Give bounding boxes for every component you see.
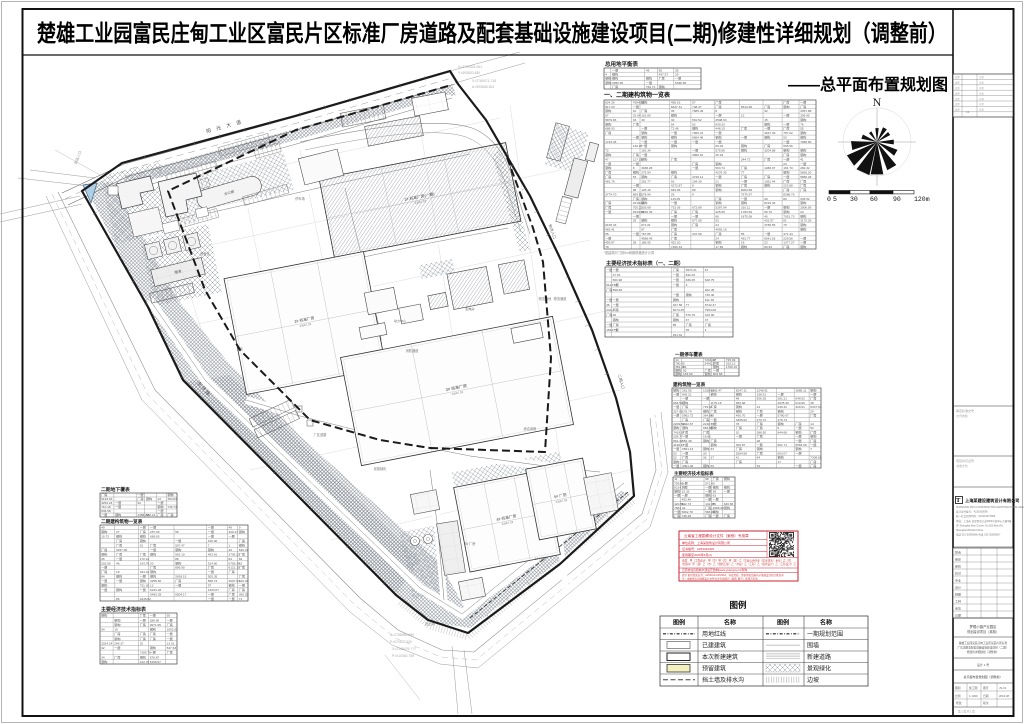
svg-text:A=593648.304: A=593648.304 xyxy=(472,85,494,89)
svg-text:一层: 一层 xyxy=(605,209,611,214)
svg-text:一层: 一层 xyxy=(633,135,639,140)
svg-text:507.47: 507.47 xyxy=(175,543,185,547)
svg-text:会签: 会签 xyxy=(955,81,960,85)
svg-text:316.30: 316.30 xyxy=(208,539,218,543)
svg-text:一层: 一层 xyxy=(692,165,698,170)
svg-text:一层: 一层 xyxy=(757,413,763,418)
svg-text:3324.24: 3324.24 xyxy=(101,641,112,645)
svg-text:厂房: 厂房 xyxy=(140,551,146,556)
svg-text:厂房: 厂房 xyxy=(705,513,711,518)
svg-text:806.90: 806.90 xyxy=(175,566,185,570)
svg-text:1875.58: 1875.58 xyxy=(741,214,752,218)
svg-text:围墙: 围墙 xyxy=(807,642,819,650)
svg-text:审定标准文号: 审定标准文号 xyxy=(956,408,974,413)
svg-text:图例: 图例 xyxy=(673,619,685,627)
svg-text:9: 9 xyxy=(692,192,694,196)
svg-text:3204.88: 3204.88 xyxy=(764,149,775,153)
svg-text:P=010062.769: P=010062.769 xyxy=(392,654,414,658)
svg-text:458.16: 458.16 xyxy=(671,100,681,104)
svg-text:钢构: 钢构 xyxy=(741,148,747,153)
svg-text:一层: 一层 xyxy=(114,645,120,650)
svg-text:32: 32 xyxy=(764,109,768,113)
svg-text:93: 93 xyxy=(715,219,719,223)
svg-text:17: 17 xyxy=(778,460,782,464)
svg-text:5397.94: 5397.94 xyxy=(715,206,726,210)
svg-text:49: 49 xyxy=(229,526,233,530)
svg-text:一层: 一层 xyxy=(606,297,612,302)
svg-text:6074.35: 6074.35 xyxy=(673,308,684,312)
svg-text:27.91: 27.91 xyxy=(613,273,621,277)
svg-text:8: 8 xyxy=(692,184,694,188)
svg-text:一层: 一层 xyxy=(682,450,688,455)
svg-text:一层: 一层 xyxy=(140,525,146,530)
svg-text:483.41: 483.41 xyxy=(605,228,615,232)
svg-text:厂房: 厂房 xyxy=(613,322,619,327)
svg-text:总平面布置规划图（调整前）: 总平面布置规划图（调整前） xyxy=(963,674,1002,679)
svg-text:一层: 一层 xyxy=(673,282,679,287)
svg-text:329.33: 329.33 xyxy=(239,579,249,583)
svg-text:453.81: 453.81 xyxy=(208,552,218,556)
svg-text:厂房: 厂房 xyxy=(239,587,245,592)
svg-text:图号: 图号 xyxy=(983,686,989,690)
svg-text:厂房: 厂房 xyxy=(150,565,156,570)
svg-text:厂房: 厂房 xyxy=(671,235,677,240)
svg-text:41: 41 xyxy=(800,157,804,161)
svg-text:1: 1 xyxy=(229,543,231,547)
svg-text:一层: 一层 xyxy=(715,174,721,179)
svg-text:81: 81 xyxy=(783,219,787,223)
svg-text:1403.07: 1403.07 xyxy=(208,588,219,592)
svg-text:62: 62 xyxy=(692,122,696,126)
svg-text:厂房: 厂房 xyxy=(229,587,235,592)
svg-text:一层: 一层 xyxy=(613,267,619,272)
svg-text:会签: 会签 xyxy=(955,605,961,610)
svg-text:844.68: 844.68 xyxy=(778,430,788,434)
svg-text:6445.82: 6445.82 xyxy=(140,597,151,601)
svg-text:厂房: 厂房 xyxy=(692,222,698,227)
svg-text:N: N xyxy=(873,95,882,109)
svg-text:19: 19 xyxy=(114,628,118,632)
svg-text:厂房: 厂房 xyxy=(674,513,680,518)
svg-text:厂房: 厂房 xyxy=(150,636,156,641)
svg-text:厂房: 厂房 xyxy=(783,178,789,183)
svg-text:80.33: 80.33 xyxy=(764,245,772,249)
svg-text:0: 0 xyxy=(827,196,831,203)
svg-text:192.34: 192.34 xyxy=(641,149,651,153)
svg-text:厂房: 厂房 xyxy=(764,156,770,161)
svg-text:钢构: 钢构 xyxy=(116,587,122,592)
svg-text:厂房: 厂房 xyxy=(692,209,698,214)
svg-text:厂房: 厂房 xyxy=(167,650,173,655)
svg-text:SHANGHAI MOU CONSTRUCTION ARCH: SHANGHAI MOU CONSTRUCTION ARCHITECTURAL … xyxy=(956,506,1024,509)
svg-text:一层: 一层 xyxy=(167,636,173,641)
svg-text:边坡: 边坡 xyxy=(807,676,819,684)
svg-text:186.95: 186.95 xyxy=(641,241,651,245)
svg-text:425.65: 425.65 xyxy=(715,210,725,214)
svg-text:9: 9 xyxy=(239,526,241,530)
svg-text:钢构: 钢构 xyxy=(715,161,721,166)
svg-text:钢构: 钢构 xyxy=(673,317,679,322)
svg-text:一层: 一层 xyxy=(795,450,801,455)
svg-text:厂房: 厂房 xyxy=(741,183,747,188)
svg-text:用地红线: 用地红线 xyxy=(702,630,726,638)
svg-text:厂房: 厂房 xyxy=(114,654,120,659)
svg-text:钢构: 钢构 xyxy=(741,200,747,205)
svg-text:5886.28: 5886.28 xyxy=(800,175,811,179)
svg-text:5493.28: 5493.28 xyxy=(150,593,161,597)
svg-text:厂房: 厂房 xyxy=(114,631,120,636)
svg-text:6# 厂房: 6# 厂房 xyxy=(535,556,546,561)
svg-text:钢构: 钢构 xyxy=(671,170,677,175)
svg-text:设计证书编号：A231005696: 设计证书编号：A231005696 xyxy=(956,510,988,514)
svg-text:钢构: 钢构 xyxy=(659,84,665,89)
svg-text:21: 21 xyxy=(715,179,719,183)
svg-text:188.90: 188.90 xyxy=(150,618,160,622)
svg-text:厂房: 厂房 xyxy=(140,622,146,627)
svg-text:578.87: 578.87 xyxy=(150,655,160,659)
svg-text:一层: 一层 xyxy=(673,277,679,282)
svg-text:689.83: 689.83 xyxy=(150,534,160,538)
svg-text:1723.45: 1723.45 xyxy=(605,140,616,144)
svg-text:3789.55: 3789.55 xyxy=(764,223,775,227)
svg-text:钢构: 钢构 xyxy=(146,496,152,501)
svg-text:一层: 一层 xyxy=(606,267,612,272)
svg-text:一层: 一层 xyxy=(150,547,156,552)
svg-text:钢构: 钢构 xyxy=(115,512,121,517)
svg-text:3574.21: 3574.21 xyxy=(686,268,697,272)
svg-text:628.75: 628.75 xyxy=(705,278,715,282)
svg-text:日期: 日期 xyxy=(979,81,984,85)
svg-text:厂房: 厂房 xyxy=(673,267,679,272)
svg-text:厂房: 厂房 xyxy=(741,126,747,131)
svg-text:8288.76: 8288.76 xyxy=(783,192,794,196)
svg-text:名称: 名称 xyxy=(724,619,736,627)
svg-text:164.30: 164.30 xyxy=(692,179,702,183)
svg-text:54: 54 xyxy=(671,122,675,126)
svg-text:一层: 一层 xyxy=(715,139,721,144)
svg-text:云南省工程勘察设计文件（案例）专用章: 云南省工程勘察设计文件（案例）专用章 xyxy=(684,533,749,538)
svg-text:钢构: 钢构 xyxy=(671,135,677,140)
svg-text:厂房: 厂房 xyxy=(208,565,214,570)
svg-text:275.54: 275.54 xyxy=(641,171,651,175)
svg-text:会签: 会签 xyxy=(955,75,960,79)
svg-text:29: 29 xyxy=(671,192,675,196)
svg-text:229.56: 229.56 xyxy=(783,236,793,240)
svg-text:一层: 一层 xyxy=(140,617,146,622)
svg-text:钢构: 钢构 xyxy=(641,218,647,223)
svg-text:565.96: 565.96 xyxy=(783,144,793,148)
svg-text:厂房: 厂房 xyxy=(606,312,612,317)
svg-text:514.60: 514.60 xyxy=(208,561,218,565)
svg-text:钢构: 钢构 xyxy=(764,121,770,126)
svg-text:319.90: 319.90 xyxy=(705,313,715,317)
svg-text:8742.37: 8742.37 xyxy=(705,303,716,307)
svg-text:提示:取得资质证书：A253010-A253010，有效资质: 提示:取得资质证书：A253010-A253010，有效资质，资格等级范围内从事… xyxy=(682,573,784,577)
svg-text:172.12: 172.12 xyxy=(140,557,150,561)
svg-text:762.71: 762.71 xyxy=(646,85,656,89)
svg-text:1885.11: 1885.11 xyxy=(795,388,806,392)
svg-text:327.56: 327.56 xyxy=(673,303,683,307)
svg-text:5338.65: 5338.65 xyxy=(675,81,686,85)
svg-text:Shanghai 200120 China: Shanghai 200120 China xyxy=(956,529,983,532)
svg-text:10: 10 xyxy=(633,109,637,113)
svg-text:3170.26: 3170.26 xyxy=(800,219,811,223)
svg-text:施工图: 施工图 xyxy=(969,686,978,690)
svg-text:梦想小镇产业园区: 梦想小镇产业园区 xyxy=(969,624,997,629)
svg-text:一层: 一层 xyxy=(703,396,709,401)
svg-text:一层: 一层 xyxy=(692,148,698,153)
svg-text:824.26: 824.26 xyxy=(605,100,615,104)
svg-text:楚雄工业园富民庄甸工业区富民片区标准厂房道路及配套基础设施建: 楚雄工业园富民庄甸工业区富民片区标准厂房道路及配套基础设施建设项目(二期)修建性… xyxy=(37,20,947,46)
svg-text:钢构: 钢构 xyxy=(741,244,747,249)
svg-text:钢构: 钢构 xyxy=(239,542,245,547)
svg-text:730.36: 730.36 xyxy=(705,293,715,297)
svg-text:575.66: 575.66 xyxy=(715,149,725,153)
svg-text:钢构: 钢构 xyxy=(175,560,181,565)
svg-text:一层: 一层 xyxy=(673,272,679,277)
svg-text:一层: 一层 xyxy=(741,135,747,140)
svg-text:厂房: 厂房 xyxy=(605,205,611,210)
svg-text:厂房: 厂房 xyxy=(633,152,639,157)
svg-text:一层: 一层 xyxy=(208,529,214,534)
svg-text:688.93: 688.93 xyxy=(605,127,615,131)
svg-text:563.98: 563.98 xyxy=(613,278,623,282)
svg-text:69: 69 xyxy=(711,464,715,468)
svg-text:27: 27 xyxy=(116,530,120,534)
svg-text:修改: 修改 xyxy=(956,701,962,705)
svg-text:钢构: 钢构 xyxy=(114,622,120,627)
svg-text:钢构: 钢构 xyxy=(724,505,730,510)
svg-text:384.83: 384.83 xyxy=(167,497,177,501)
svg-text:一层: 一层 xyxy=(150,613,156,618)
svg-text:4276.35: 4276.35 xyxy=(715,171,726,175)
svg-text:1092.02: 1092.02 xyxy=(167,628,178,632)
svg-text:57: 57 xyxy=(692,100,696,104)
svg-text:钢构: 钢构 xyxy=(229,583,235,588)
svg-text:厂房: 厂房 xyxy=(116,542,122,547)
svg-text:钢构: 钢构 xyxy=(140,533,146,538)
svg-text:86: 86 xyxy=(175,557,179,561)
svg-text:526.47: 526.47 xyxy=(239,548,249,552)
svg-text:55: 55 xyxy=(167,614,171,618)
svg-text:消防通道: 消防通道 xyxy=(406,348,420,353)
svg-text:日期: 日期 xyxy=(983,694,989,698)
svg-text:钢构: 钢构 xyxy=(633,170,639,175)
svg-text:94: 94 xyxy=(137,501,141,505)
svg-text:598.73: 598.73 xyxy=(208,579,218,583)
svg-text:钢构: 钢构 xyxy=(605,80,611,85)
svg-text:一层: 一层 xyxy=(208,525,214,530)
svg-text:115.05: 115.05 xyxy=(671,197,681,201)
svg-text:日期: 日期 xyxy=(955,612,961,617)
svg-text:钢构: 钢构 xyxy=(715,200,721,205)
svg-text:厂房: 厂房 xyxy=(633,121,639,126)
svg-text:4272.87: 4272.87 xyxy=(671,184,682,188)
svg-text:JS-01: JS-01 xyxy=(999,686,1007,690)
svg-text:钢构: 钢构 xyxy=(741,143,747,148)
svg-text:61: 61 xyxy=(140,543,144,547)
svg-text:257.09: 257.09 xyxy=(150,530,160,534)
svg-text:69.04: 69.04 xyxy=(715,144,723,148)
svg-text:6541.93: 6541.93 xyxy=(764,236,775,240)
svg-text:432.57: 432.57 xyxy=(764,219,774,223)
svg-text:X=21684?5.??7: X=21684?5.??7 xyxy=(392,647,416,651)
svg-text:59.70: 59.70 xyxy=(764,210,772,214)
svg-text:厂房: 厂房 xyxy=(810,413,816,418)
svg-text:宿舍区: 宿舍区 xyxy=(200,251,210,256)
svg-text:471.44: 471.44 xyxy=(783,232,793,236)
svg-text:钢构: 钢构 xyxy=(715,240,721,245)
svg-text:钢构: 钢构 xyxy=(800,117,806,122)
svg-text:厂房: 厂房 xyxy=(613,307,619,312)
svg-text:67: 67 xyxy=(705,268,709,272)
svg-text:厂房: 厂房 xyxy=(783,152,789,157)
svg-text:37: 37 xyxy=(686,318,690,322)
svg-text:一层: 一层 xyxy=(633,104,639,109)
svg-text:222.88: 222.88 xyxy=(783,184,793,188)
svg-text:817.63: 817.63 xyxy=(605,105,615,109)
svg-text:一层: 一层 xyxy=(764,126,770,131)
svg-text:厂房: 厂房 xyxy=(239,538,245,543)
svg-text:一层: 一层 xyxy=(673,463,679,468)
svg-text:X=2769424.061: X=2769424.061 xyxy=(458,65,482,69)
svg-text:30: 30 xyxy=(641,118,645,122)
svg-text:一层: 一层 xyxy=(606,322,612,327)
svg-text:5: 5 xyxy=(833,196,837,203)
svg-text:景园林）甲（建）乙（市）乙（规划乙级）乙（市政）乙（工程）乙: 景园林）甲（建）乙（市）乙（规划乙级）乙（市政）乙（工程）乙（勘察设计）乙（工程… xyxy=(682,562,797,566)
svg-text:748.37: 748.37 xyxy=(692,105,702,109)
svg-text:一层: 一层 xyxy=(116,578,122,583)
svg-text:一层: 一层 xyxy=(229,533,235,538)
svg-text:钢构: 钢构 xyxy=(783,209,789,214)
svg-text:审定: 审定 xyxy=(955,556,961,561)
svg-text:18: 18 xyxy=(116,570,120,574)
svg-text:钢构: 钢构 xyxy=(613,317,619,322)
svg-text:6504.17: 6504.17 xyxy=(175,593,186,597)
svg-text:46: 46 xyxy=(116,561,120,565)
svg-text:一层: 一层 xyxy=(150,650,156,655)
svg-text:一层: 一层 xyxy=(101,512,107,517)
svg-text:(文件依据): (文件依据) xyxy=(956,414,968,418)
svg-text:厂房: 厂房 xyxy=(783,99,789,104)
svg-text:90: 90 xyxy=(893,196,901,203)
svg-text:29: 29 xyxy=(633,219,637,223)
svg-text:Y=593620.480: Y=593620.480 xyxy=(458,71,480,75)
svg-text:601.71: 601.71 xyxy=(778,443,788,447)
svg-text:23: 23 xyxy=(783,162,787,166)
svg-text:163.69: 163.69 xyxy=(683,372,693,376)
svg-text:钢构: 钢构 xyxy=(800,200,806,205)
svg-text:481.76: 481.76 xyxy=(605,179,615,183)
svg-text:4992.19: 4992.19 xyxy=(715,228,726,232)
svg-text:厂房道路及配套基础设施建设项目（二期）: 厂房道路及配套基础设施建设项目（二期） xyxy=(957,646,1008,650)
svg-text:厂房: 厂房 xyxy=(229,592,235,597)
svg-text:钢构: 钢构 xyxy=(641,196,647,201)
svg-text:厂房: 厂房 xyxy=(612,84,618,89)
svg-text:钢构: 钢构 xyxy=(641,99,647,104)
svg-text:753.36: 753.36 xyxy=(671,206,681,210)
svg-text:钢构: 钢构 xyxy=(692,126,698,131)
svg-text:日期: 日期 xyxy=(979,102,984,106)
svg-text:校对: 校对 xyxy=(955,570,961,575)
svg-text:钢构: 钢构 xyxy=(116,533,122,538)
svg-text:钢构: 钢构 xyxy=(800,148,806,153)
svg-text:物流通道: 物流通道 xyxy=(554,296,568,301)
svg-text:6647.31: 6647.31 xyxy=(671,105,682,109)
svg-text:1: 1 xyxy=(705,328,707,332)
svg-text:86: 86 xyxy=(116,597,120,601)
svg-text:厂房: 厂房 xyxy=(229,569,235,574)
svg-text:新建道路: 新建道路 xyxy=(807,653,831,661)
svg-text:一层: 一层 xyxy=(800,161,806,166)
svg-text:7685.49: 7685.49 xyxy=(692,109,703,113)
svg-text:日期: 日期 xyxy=(979,86,984,90)
svg-text:厂房: 厂房 xyxy=(605,174,611,179)
svg-text:一层: 一层 xyxy=(764,231,770,236)
svg-text:钢构: 钢构 xyxy=(116,574,122,579)
svg-text:钢构: 钢构 xyxy=(800,227,806,232)
svg-text:3001.36: 3001.36 xyxy=(682,464,693,468)
svg-text:2971.95: 2971.95 xyxy=(150,623,161,627)
svg-text:6234.28: 6234.28 xyxy=(150,588,161,592)
svg-text:7: 7 xyxy=(208,543,210,547)
svg-text:143.76: 143.76 xyxy=(140,561,150,565)
svg-text:6105.43: 6105.43 xyxy=(605,223,616,227)
svg-text:钢构: 钢构 xyxy=(101,659,107,664)
svg-text:一层: 一层 xyxy=(783,174,789,179)
svg-text:日期: 日期 xyxy=(979,91,984,95)
svg-text:一层: 一层 xyxy=(736,434,742,439)
svg-text:厂房: 厂房 xyxy=(783,126,789,131)
svg-text:一层: 一层 xyxy=(101,565,107,570)
svg-text:一层: 一层 xyxy=(633,161,639,166)
svg-text:厂房: 厂房 xyxy=(671,209,677,214)
svg-text:钢构: 钢构 xyxy=(671,143,677,148)
svg-text:厂房: 厂房 xyxy=(101,569,107,574)
svg-text:36: 36 xyxy=(606,303,610,307)
svg-text:钢构: 钢构 xyxy=(605,121,611,126)
svg-text:84: 84 xyxy=(101,575,105,579)
svg-text:厂房: 厂房 xyxy=(157,512,163,517)
svg-text:一、二期建构筑物一览表: 一、二期建构筑物一览表 xyxy=(604,91,671,99)
svg-text:4627.49: 4627.49 xyxy=(764,131,775,135)
svg-text:第 1 页 共 1 页: 第 1 页 共 1 页 xyxy=(958,710,975,714)
svg-text:611.35: 611.35 xyxy=(705,298,715,302)
svg-text:厂房: 厂房 xyxy=(140,631,146,636)
svg-text:版次: 版次 xyxy=(983,701,989,705)
svg-text:412.78: 412.78 xyxy=(140,660,150,664)
svg-text:钢构: 钢构 xyxy=(800,222,806,227)
svg-text:钢构: 钢构 xyxy=(800,135,806,140)
svg-text:60: 60 xyxy=(870,196,878,203)
svg-text:钢构: 钢构 xyxy=(800,244,806,249)
svg-text:4729.11: 4729.11 xyxy=(692,175,703,179)
svg-text:79: 79 xyxy=(783,223,787,227)
svg-text:钢构: 钢构 xyxy=(641,200,647,205)
svg-text:77: 77 xyxy=(686,303,690,307)
svg-text:一层: 一层 xyxy=(671,213,677,218)
svg-text:图别: 图别 xyxy=(955,686,961,690)
svg-text:一层: 一层 xyxy=(713,513,719,518)
svg-text:钢构: 钢构 xyxy=(671,218,677,223)
svg-text:会签: 会签 xyxy=(955,108,960,112)
svg-text:55: 55 xyxy=(800,127,804,131)
svg-text:厂房: 厂房 xyxy=(764,104,770,109)
svg-text:一层: 一层 xyxy=(208,569,214,574)
svg-text:一层: 一层 xyxy=(673,413,679,418)
svg-text:一层: 一层 xyxy=(605,235,611,240)
svg-text:38: 38 xyxy=(633,241,637,245)
